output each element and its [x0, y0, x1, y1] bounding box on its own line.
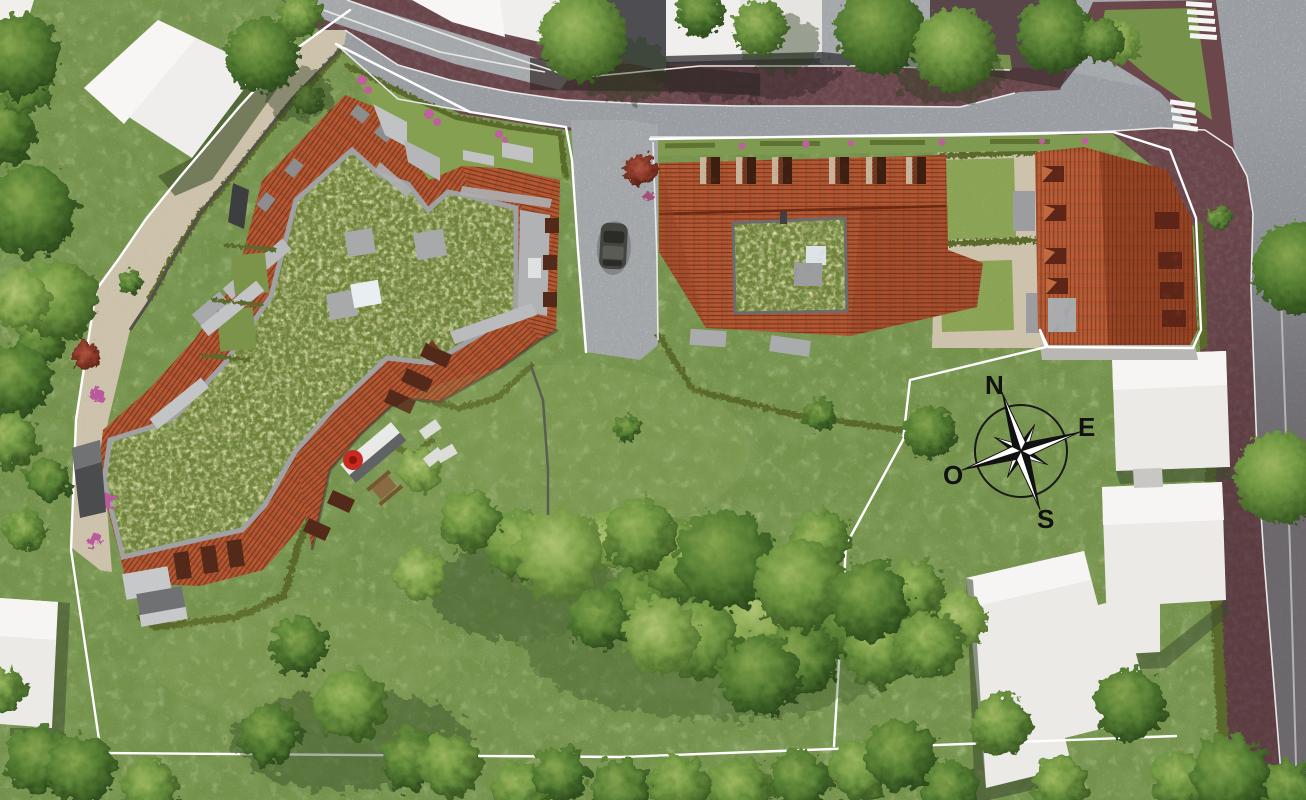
- svg-text:O: O: [943, 460, 963, 490]
- svg-text:S: S: [1037, 504, 1054, 534]
- svg-text:N: N: [985, 370, 1004, 400]
- svg-text:E: E: [1078, 412, 1095, 442]
